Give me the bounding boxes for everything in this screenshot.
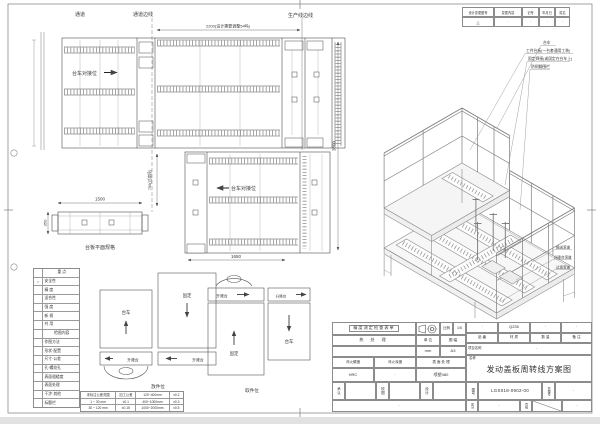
check-mark: ○ [34, 278, 43, 286]
checklist-item: 尺寸·公差 [43, 357, 79, 362]
aisle-label: 通道 [75, 11, 85, 18]
aisle-edge-label: 通道边线 [133, 11, 153, 18]
revision-header: 设计变更图号 [462, 7, 494, 17]
qty-value: · [530, 322, 561, 333]
checklist-row: 形状·配置 [34, 346, 79, 355]
manage-no-label: 管理号 [542, 382, 555, 400]
fixed-label: 固定 [183, 292, 192, 299]
lift-label: 升降台 [216, 294, 228, 299]
position-diagram-load [100, 273, 216, 379]
callout-transition-roller: 过渡滚道 [556, 265, 570, 270]
trolley-label: 台车 [122, 309, 131, 316]
surface-treatment-label: 表 面 处 理 [416, 357, 466, 368]
dim-750: 750(过渡段) [147, 169, 152, 190]
page-label: 页码 [520, 400, 532, 412]
side-view-label: 台板平面规格 [85, 244, 115, 251]
heat-treatment-label: 热 处 理 [332, 335, 416, 346]
checklist-item: 适合性 [43, 296, 79, 301]
check-mark [34, 399, 43, 407]
drawing-title-cell: 名称 发动盖板周转线方案图 [466, 355, 592, 382]
check-mark [34, 391, 43, 399]
checklist-row: 适合性 [34, 294, 79, 303]
design-label: 设计 [420, 382, 433, 400]
check-mark [34, 365, 43, 373]
check-mark [34, 269, 43, 277]
quench-depth-label: 淬火深度 [374, 357, 416, 368]
unit-label: 单 位 [416, 335, 440, 346]
fixed-label: 固定 [230, 350, 239, 357]
page-extra-cell: · [562, 400, 592, 412]
checklist-row: 精 度 [34, 285, 79, 294]
project-name-label: 项目名称 [467, 347, 482, 351]
plan-view-main [62, 38, 345, 148]
checklist-item: 形状·配置 [43, 349, 79, 354]
manage-no-value: · [555, 382, 592, 400]
checklist-row: 作图方法 [34, 338, 79, 347]
checklist-row: 重 点 [34, 269, 79, 277]
callout-trolley: 台车 [543, 40, 551, 45]
check-label: 校图 [376, 382, 389, 400]
callout-fixed-weld: 固定焊接(或固定在台车上) [528, 56, 573, 61]
callout-antitip-rail: 防侧翻围栏 [531, 64, 550, 69]
checklist-item: 强 度 [43, 305, 79, 310]
load-position-label: 放件位 [151, 383, 165, 390]
surface-treatment-value: 喷塑480 [416, 368, 466, 382]
platform-side-view [52, 212, 148, 234]
page-diagonal-cell [532, 400, 562, 412]
revision-value: · [555, 17, 570, 27]
checklist-row: 孔·螺纹孔 [34, 364, 79, 373]
operator-head [119, 368, 133, 375]
check-mark [34, 295, 43, 303]
drawing-sheet: 2200(设计需要调整54吗) 1500 350 750(过渡段) 1650 3… [0, 0, 600, 424]
projection-symbol-cell [416, 322, 440, 335]
approve-label: 承认 [332, 382, 345, 400]
quench-hardness-value: HRC [332, 368, 374, 382]
checklist-item: 精 度 [43, 288, 79, 293]
check-mark [34, 312, 43, 320]
isometric-view [384, 108, 574, 319]
checklist-item: 干涉·其他 [43, 392, 79, 397]
class-value: · [478, 400, 520, 412]
checklist-item: 共 用 [43, 322, 79, 327]
material-value: Q235 [498, 322, 530, 333]
page-edge-shadow [0, 417, 600, 424]
tolerance-row: 1 ~ 30 mm ±0.1 400~1000mm ±0.3 [81, 398, 183, 405]
trolley-label: 台车 [285, 338, 294, 345]
revision-value: · [494, 17, 522, 27]
production-edge-label: 生产线边线 [288, 12, 313, 19]
dim-3800: 3800 [332, 140, 337, 151]
check-mark [34, 339, 43, 347]
project-name-cell: 项目名称 · [466, 343, 592, 355]
checklist-row: 表面粗糙度 [34, 372, 79, 381]
checklist-header: 检图内容 [43, 331, 79, 336]
check-mark [34, 373, 43, 381]
dock-label-2: 台车对接位 [231, 185, 256, 192]
checklist-item: 安全性 [43, 279, 79, 284]
revision-header: 记号 [522, 7, 539, 17]
check-mark [34, 321, 43, 329]
format-value: A3 [440, 346, 466, 357]
tolerance-row: 30 ~ 120 mm ±0.15 1000~2000mm ±0.5 [81, 404, 183, 411]
tolerance-cell: ±0.5 [170, 405, 183, 411]
roller-strips [64, 40, 341, 146]
operator-arc [104, 366, 148, 379]
revision-mark: △ [462, 17, 494, 27]
revision-header: 年月日 [539, 7, 555, 17]
check-mark [34, 330, 43, 338]
dim-1650: 1650 [231, 254, 242, 259]
dim-1500: 1500 [95, 197, 106, 202]
scale-value: 1/5 [453, 322, 466, 335]
dim-2200: 2200(设计需要调整54吗) [206, 23, 251, 29]
revision-value: · [522, 17, 539, 27]
remark-value: · [561, 322, 592, 333]
checklist-row: 新 规 [34, 311, 79, 320]
quench-depth-value: · [374, 368, 416, 382]
punch-hole-bottom [11, 264, 17, 270]
punch-hole-top [11, 150, 17, 156]
lift-label: 升降台 [276, 294, 287, 299]
pick-position-label: 取件位 [245, 387, 259, 394]
checklist-row: 共 用 [34, 320, 79, 329]
position-diagram-pick [208, 276, 310, 376]
tolerance-cell: ±0.15 [116, 405, 136, 411]
project-name-value: · [482, 347, 591, 351]
checklist-table: 重 点 ○安全性 精 度 适合性 强 度 新 规 共 用 检图内容 作图方法 形… [33, 268, 80, 408]
checklist-item: 作图方法 [43, 340, 79, 345]
drawing-no-value: LGS018-0902-00 [478, 382, 542, 400]
scale-label: 比例 [440, 322, 453, 335]
part-no-value: · [466, 322, 498, 333]
check-mark [34, 286, 43, 294]
check-mark [34, 304, 43, 312]
check-signature [389, 382, 420, 400]
callout-conveyor-roller: 输送滚道 [556, 245, 570, 250]
checklist-item: 表面粗糙度 [43, 375, 79, 380]
checklist-row: 干涉·其他 [34, 390, 79, 399]
class-label: 区分 [466, 400, 478, 412]
design-signature [433, 382, 466, 400]
footer-cell: · [332, 400, 466, 412]
checklist-item: 表面处理 [43, 383, 79, 388]
inspect-header-cell: 精度测定检查表单 [332, 322, 416, 335]
check-mark [34, 347, 43, 355]
material-label: 材 质 [498, 333, 530, 343]
check-mark [34, 382, 43, 390]
revision-header: 变更内容 [494, 7, 522, 17]
checklist-row: 强 度 [34, 303, 79, 312]
part-no-label: 品 番 [466, 333, 498, 343]
tolerance-table: 未标注公差范围 加工公差 120~400mm ±0.2 1 ~ 30 mm ±0… [80, 391, 184, 412]
lift-label: 升降台 [127, 358, 139, 363]
checklist-row: 尺寸·公差 [34, 355, 79, 364]
inspect-header: 精度测定检查表单 [349, 325, 399, 332]
qty-label: 数 量 [530, 333, 561, 343]
callout-lift-roller: 升降台滚道 [554, 255, 572, 260]
check-mark [34, 356, 43, 364]
dock-label-1: 台车对接位 [72, 70, 97, 77]
revision-header: 姓名 [555, 7, 570, 17]
dim-350: 350 [43, 219, 48, 226]
callout-workpiece-plate: 工件台板(一台套通用工装) [526, 48, 571, 53]
drawing-title: 发动盖板周转线方案图 [487, 366, 572, 375]
heat-treatment-value [332, 346, 416, 357]
checklist-row: 表面处理 [34, 381, 79, 390]
checklist-item: 新 规 [43, 314, 79, 319]
revision-table: 设计变更图号 变更内容 记号 年月日 姓名 △ · · · · [462, 7, 570, 27]
revision-value: · [539, 17, 555, 27]
checklist-row: 检图内容 [34, 329, 79, 338]
checklist-row: 标题栏 [34, 398, 79, 407]
checklist-item: 孔·螺纹孔 [43, 366, 79, 371]
approve-signature [345, 382, 376, 400]
checklist-item: 标题栏 [43, 401, 79, 406]
name-label: 名称 [469, 357, 476, 361]
plan-view-lower [185, 152, 330, 253]
remark-label: 备 注 [561, 333, 592, 343]
format-label: 图 幅 [440, 335, 466, 346]
quench-hardness-label: 淬火硬度 [332, 357, 374, 368]
lift-label: 升降台 [192, 358, 204, 363]
tolerance-cell: 1000~2000mm [136, 405, 169, 411]
title-block: 精度测定检查表单 比例 1/5 热 处 理 单 位 图 幅 mm A3 淬火硬度… [332, 322, 592, 412]
unit-value: mm [416, 346, 440, 357]
projection-symbol-icon [418, 324, 438, 334]
tolerance-cell: 30 ~ 120 mm [81, 405, 116, 411]
checklist-row: ○安全性 [34, 277, 79, 286]
checklist-header: 重 点 [43, 270, 79, 275]
drawing-no-label: 图号 [466, 382, 478, 400]
